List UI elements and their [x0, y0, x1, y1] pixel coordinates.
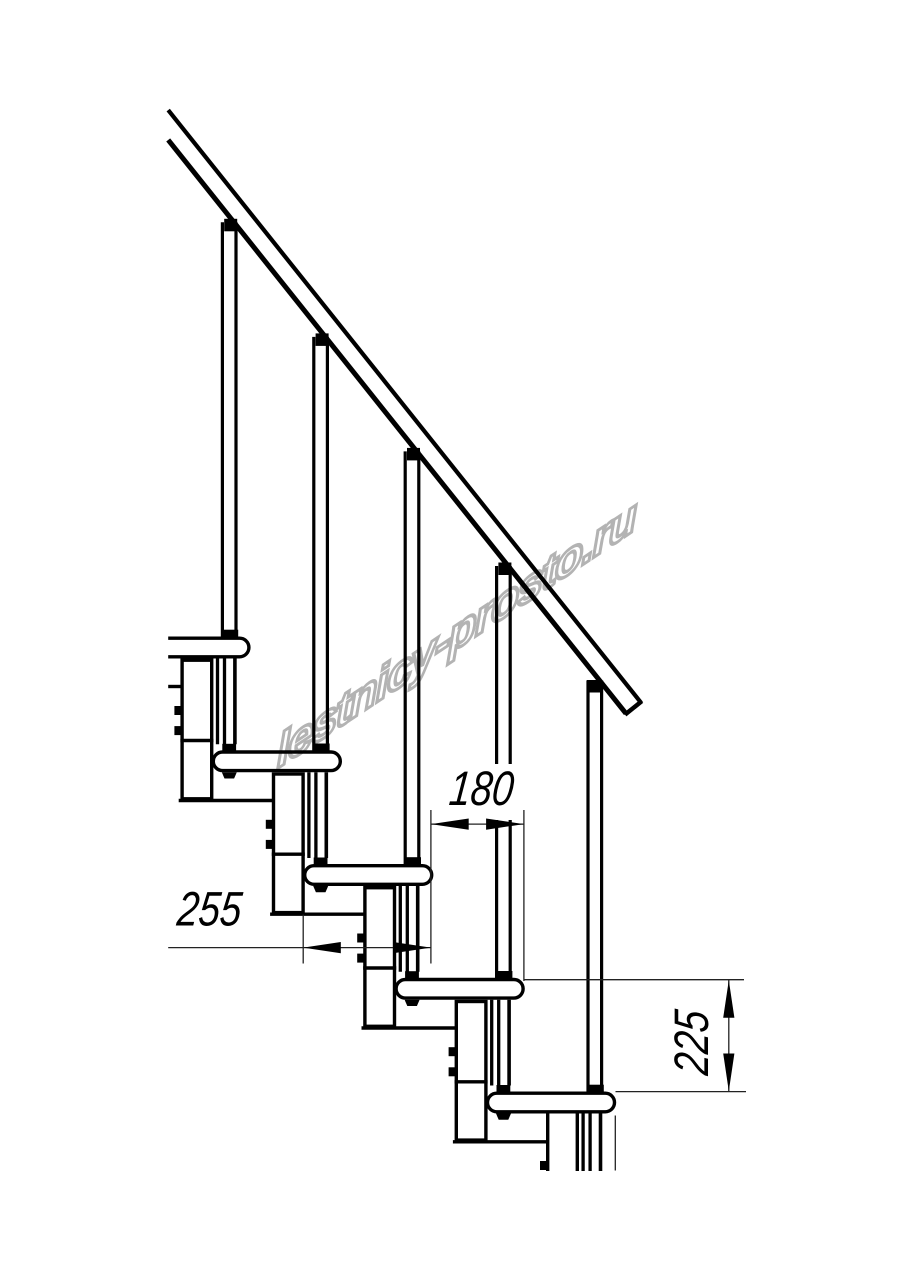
svg-text:180: 180 — [447, 762, 517, 816]
svg-text:255: 255 — [174, 883, 245, 937]
svg-text:225: 225 — [665, 1007, 719, 1078]
